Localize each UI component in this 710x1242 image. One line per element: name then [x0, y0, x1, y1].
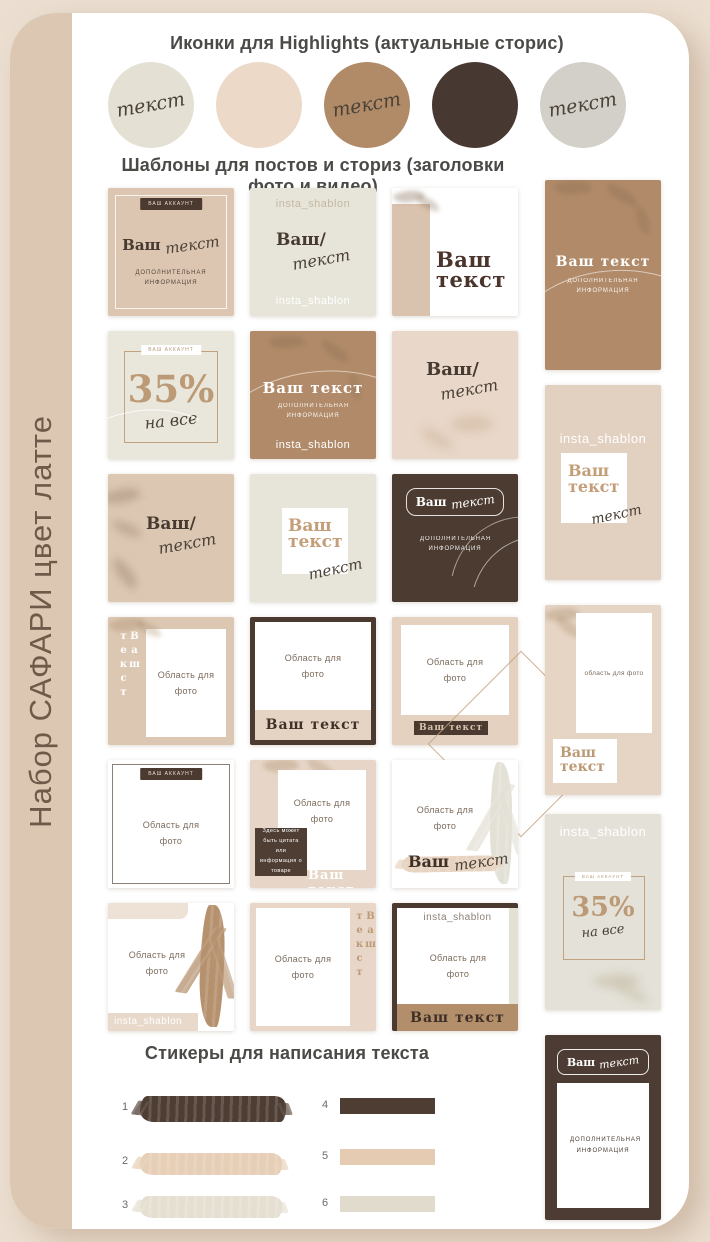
- template-card-r3c3: Ваш текст ДОПОЛНИТЕЛЬНАЯ ИНФОРМАЦИЯ: [392, 474, 518, 602]
- leaf-decoration: [630, 205, 656, 236]
- leaf-decoration: [554, 180, 593, 199]
- photo-area: Область для фото: [256, 908, 350, 1026]
- script-text: текст: [547, 88, 619, 122]
- card-title: Ваш текст: [408, 852, 508, 872]
- title-strip: Ваш текст: [397, 1004, 518, 1031]
- template-card-r1c3: Ваш текст: [392, 188, 518, 316]
- title-strip: Ваш текст: [255, 710, 371, 740]
- sticker-number: 4: [322, 1099, 328, 1111]
- quote-box: Здесь может быть цитата или информация о…: [255, 828, 307, 876]
- highlight-icon-5: текст: [540, 62, 626, 148]
- story-card-1: Ваш текст ДОПОЛНИТЕЛЬНАЯ ИНФОРМАЦИЯ: [545, 180, 661, 370]
- template-card-r6c1: Область для фото insta_shablon: [108, 903, 234, 1031]
- card-title: Ваш текст: [436, 250, 506, 290]
- template-card-r4c2: Область для фото Ваш текст: [250, 617, 376, 745]
- script-text: текст: [115, 88, 187, 122]
- template-card-r1c2: insta_shablon Ваш/ текст insta_shablon: [250, 188, 376, 316]
- leaf-decoration: [108, 557, 143, 590]
- curve-line: [442, 509, 518, 602]
- highlight-icon-3: текст: [324, 62, 410, 148]
- handle-top: insta_shablon: [397, 912, 518, 923]
- card-title: Ваш/ текст: [146, 514, 216, 554]
- story-card-3: область для фото Ваш текст: [545, 605, 661, 795]
- story-card-4: insta_shablon ВАШ АККАУНТ 35% на все: [545, 814, 661, 1010]
- template-card-r6c3: insta_shablon Область для фото Ваш текст: [392, 903, 518, 1031]
- sticker-rect-4: [340, 1098, 435, 1114]
- sidebar: Набор САФАРИ цвет латте: [10, 13, 72, 1229]
- handle-top: insta_shablon: [250, 198, 376, 210]
- photo-label: область для фото: [585, 670, 644, 677]
- highlights-title: Иконки для Highlights (актуальные сторис…: [60, 33, 674, 54]
- highlight-icon-4: [432, 62, 518, 148]
- photo-area: Область для фото: [114, 784, 228, 882]
- account-badge: ВАШ АККАУНТ: [140, 768, 202, 780]
- title-frame: Ваш текст: [406, 488, 504, 516]
- handle-bottom: insta_shablon: [250, 295, 376, 307]
- story-title: Ваш текст: [561, 453, 627, 495]
- wash-decoration: [108, 903, 188, 919]
- story-card-2: insta_shablon Ваш текст текст: [545, 385, 661, 580]
- title-frame: Ваш текст: [557, 1049, 649, 1075]
- set-title: Набор САФАРИ цвет латте: [23, 415, 59, 828]
- account-badge: ВАШ АККАУНТ: [141, 345, 201, 355]
- design-sheet: Набор САФАРИ цвет латте Иконки для Highl…: [10, 13, 689, 1229]
- photo-area: Область для фото: [401, 625, 509, 715]
- template-card-r4c3: Область для фото Ваш текст: [392, 617, 518, 745]
- sticker-number: 2: [122, 1155, 128, 1167]
- vertical-title: Ваш текст: [118, 631, 140, 735]
- template-card-r2c1: ВАШ АККАУНТ 35% на все: [108, 331, 234, 459]
- account-badge: ВАШ АККАУНТ: [575, 872, 631, 881]
- leaf-decoration: [319, 340, 352, 363]
- sticker-number: 3: [122, 1199, 128, 1211]
- account-badge: ВАШ АККАУНТ: [140, 198, 202, 210]
- leaf-decoration: [419, 426, 456, 451]
- sticker-number: 6: [322, 1197, 328, 1209]
- handle-top: insta_shablon: [545, 431, 661, 446]
- highlight-icons-row: текст текст текст: [108, 62, 626, 148]
- info-text: ДОПОЛНИТЕЛЬНАЯ ИНФОРМАЦИЯ: [278, 401, 348, 421]
- leaf-decoration: [269, 331, 305, 353]
- leaf-decoration: [604, 183, 641, 208]
- sticker-rect-6: [340, 1196, 435, 1212]
- sticker-brush-2: [140, 1153, 282, 1175]
- story-title: Ваш текст: [545, 254, 661, 270]
- card-title: Ваш текст: [250, 379, 376, 397]
- title-badge: Ваш текст: [414, 721, 488, 735]
- highlight-icon-1: текст: [108, 62, 194, 148]
- brush-band: [198, 905, 226, 1028]
- template-card-r3c1: Ваш/ текст: [108, 474, 234, 602]
- sticker-brush-3: [140, 1196, 282, 1218]
- card-title: Ваш текст: [308, 868, 376, 888]
- photo-area: область для фото: [576, 613, 652, 733]
- template-card-r1c1: ВАШ АККАУНТ Ваш текст ДОПОЛНИТЕЛЬНАЯ ИНФ…: [108, 188, 234, 316]
- handle-top: insta_shablon: [545, 824, 661, 839]
- info-text: ДОПОЛНИТЕЛЬНАЯ ИНФОРМАЦИЯ: [131, 268, 211, 288]
- leaf-decoration: [111, 520, 143, 539]
- inner-panel: Ваш текст: [553, 739, 617, 783]
- template-card-r2c3: Ваш/ текст: [392, 331, 518, 459]
- highlight-icon-2: [216, 62, 302, 148]
- card-title: Ваш текст: [282, 508, 348, 550]
- percent-text: 35%: [108, 367, 234, 411]
- photo-area: Область для фото: [255, 622, 371, 710]
- card-title: Ваш/ текст: [276, 230, 350, 270]
- card-title: Ваш/ текст: [426, 359, 498, 400]
- info-text: ДОПОЛНИТЕЛЬНАЯ ИНФОРМАЦИЯ: [570, 1135, 636, 1155]
- card-title: Ваш текст: [108, 236, 234, 255]
- story-title: Ваш текст: [553, 739, 617, 774]
- vertical-title: Ваш текст: [354, 911, 376, 1023]
- handle-bottom: insta_shablon: [114, 1016, 182, 1027]
- template-card-r5c2: Область для фото Здесь может быть цитата…: [250, 760, 376, 888]
- info-text: ДОПОЛНИТЕЛЬНАЯ ИНФОРМАЦИЯ: [420, 534, 490, 554]
- handle-bottom: insta_shablon: [250, 439, 376, 451]
- side-band: [392, 204, 430, 316]
- leaf-decoration: [450, 410, 493, 438]
- template-card-r2c2: Ваш текст ДОПОЛНИТЕЛЬНАЯ ИНФОРМАЦИЯ inst…: [250, 331, 376, 459]
- sticker-rect-5: [340, 1149, 435, 1165]
- photo-area: Область для фото: [146, 629, 226, 737]
- info-text: ДОПОЛНИТЕЛЬНАЯ ИНФОРМАЦИЯ: [567, 276, 639, 296]
- percent-text: 35%: [545, 892, 661, 923]
- template-card-r5c3: Область для фото Ваш текст: [392, 760, 518, 888]
- photo-area: ДОПОЛНИТЕЛЬНАЯ ИНФОРМАЦИЯ: [557, 1083, 649, 1208]
- stickers-title: Стикеры для написания текста: [72, 1043, 502, 1064]
- template-card-r6c2: Область для фото Ваш текст: [250, 903, 376, 1031]
- template-card-r5c1: ВАШ АККАУНТ Область для фото: [108, 760, 234, 888]
- leaf-decoration: [108, 481, 142, 510]
- sticker-number: 5: [322, 1150, 328, 1162]
- sticker-number: 1: [122, 1101, 128, 1113]
- sticker-brush-1: [140, 1096, 286, 1122]
- script-text: текст: [331, 88, 403, 122]
- story-card-5: Ваш текст ДОПОЛНИТЕЛЬНАЯ ИНФОРМАЦИЯ: [545, 1035, 661, 1220]
- template-card-r4c1: Область для фото Ваш текст: [108, 617, 234, 745]
- template-card-r3c2: Ваш текст текст: [250, 474, 376, 602]
